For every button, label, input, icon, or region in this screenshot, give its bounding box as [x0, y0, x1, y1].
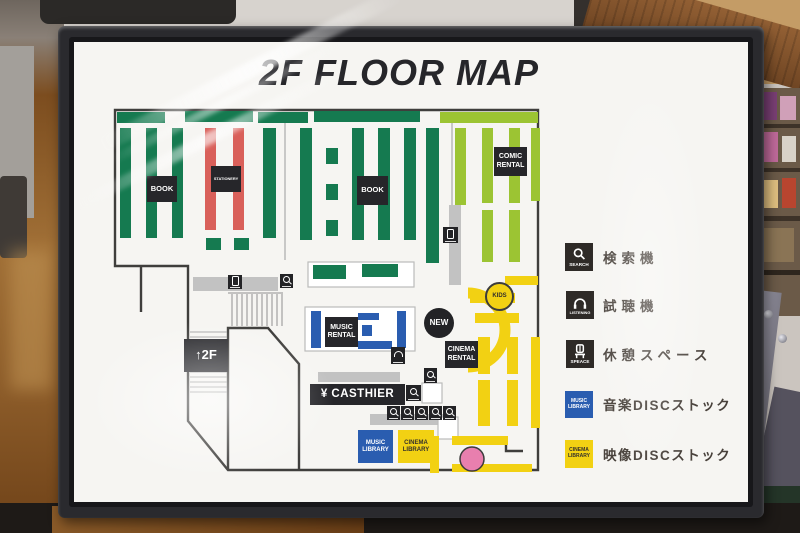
search-kiosk-icon	[443, 406, 456, 420]
legend-seat-label: 休憩スペース	[603, 340, 712, 368]
area-label-book-left: BOOK	[147, 176, 177, 202]
legend-music-library-label: 音楽DISCストック	[603, 390, 731, 418]
search-kiosk-icon	[415, 406, 428, 420]
area-label-cinema-library: CINEMALIBRARY	[398, 430, 434, 463]
area-label-comic-rental: COMICRENTAL	[494, 147, 527, 176]
new-badge: NEW	[424, 308, 454, 338]
kids-badge: KIDS	[486, 283, 513, 310]
area-label-stationery: STATIONERY	[211, 166, 241, 192]
area-label-cashier: ¥ CASTHIER	[310, 384, 405, 405]
floor-shadow	[0, 176, 27, 258]
page-title: 2F FLOOR MAP	[225, 52, 573, 94]
search-kiosk-icon	[401, 406, 414, 420]
floor-up-marker: ↑2F	[184, 339, 228, 372]
area-label-music-rental: MUSICRENTAL	[325, 317, 358, 347]
mobile-icon	[443, 227, 458, 243]
legend-search-icon: SEARCH	[565, 243, 593, 271]
store-photo: 2F FLOOR MAP	[0, 0, 800, 533]
background-object	[40, 0, 236, 24]
floor-reflection	[10, 250, 52, 390]
search-kiosk-icon	[406, 385, 421, 401]
legend-seat-icon: SPEACE	[566, 340, 594, 368]
mobile-icon	[228, 275, 242, 289]
screw	[778, 334, 787, 343]
listening-kiosk-icon	[391, 347, 405, 364]
legend-cinema-library-icon: CINEMALIBRARY	[565, 440, 593, 468]
search-kiosk-icon	[429, 406, 442, 420]
search-kiosk-icon	[424, 368, 437, 383]
screw	[764, 310, 773, 319]
legend-music-library-icon: MUSICLIBRARY	[565, 391, 593, 418]
area-label-music-library: MUSICLIBRARY	[358, 430, 393, 463]
legend-listening-label: 試聴機	[603, 291, 659, 319]
legend-listening-icon: LISTENING	[566, 291, 594, 319]
legend-cinema-library-label: 映像DISCストック	[603, 440, 731, 468]
search-kiosk-icon	[280, 274, 293, 288]
area-label-book-center: BOOK	[357, 176, 388, 205]
legend-search-label: 検索機	[603, 243, 659, 271]
area-label-cinema-rental: CINEMARENTAL	[445, 341, 478, 368]
search-kiosk-icon	[387, 406, 400, 420]
